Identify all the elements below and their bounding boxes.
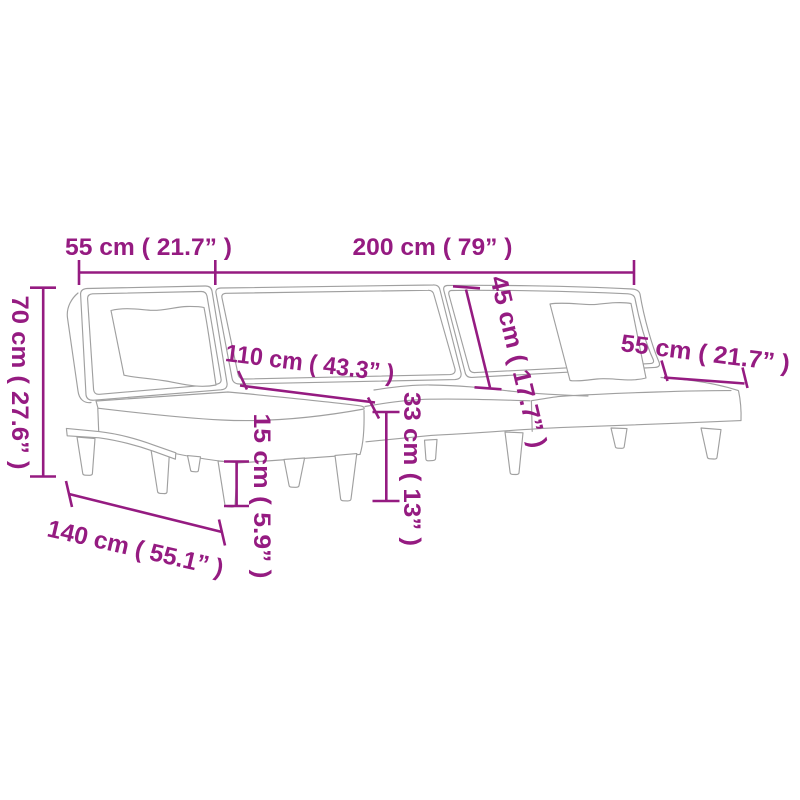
svg-text:200 cm ( 79” ): 200 cm ( 79” )	[353, 234, 513, 261]
svg-text:15 cm ( 5.9” ): 15 cm ( 5.9” )	[248, 414, 275, 579]
svg-text:70 cm ( 27.6” ): 70 cm ( 27.6” )	[6, 296, 33, 470]
svg-text:55 cm ( 21.7” ): 55 cm ( 21.7” )	[65, 234, 232, 261]
svg-text:33 cm ( 13” ): 33 cm ( 13” )	[398, 392, 425, 546]
